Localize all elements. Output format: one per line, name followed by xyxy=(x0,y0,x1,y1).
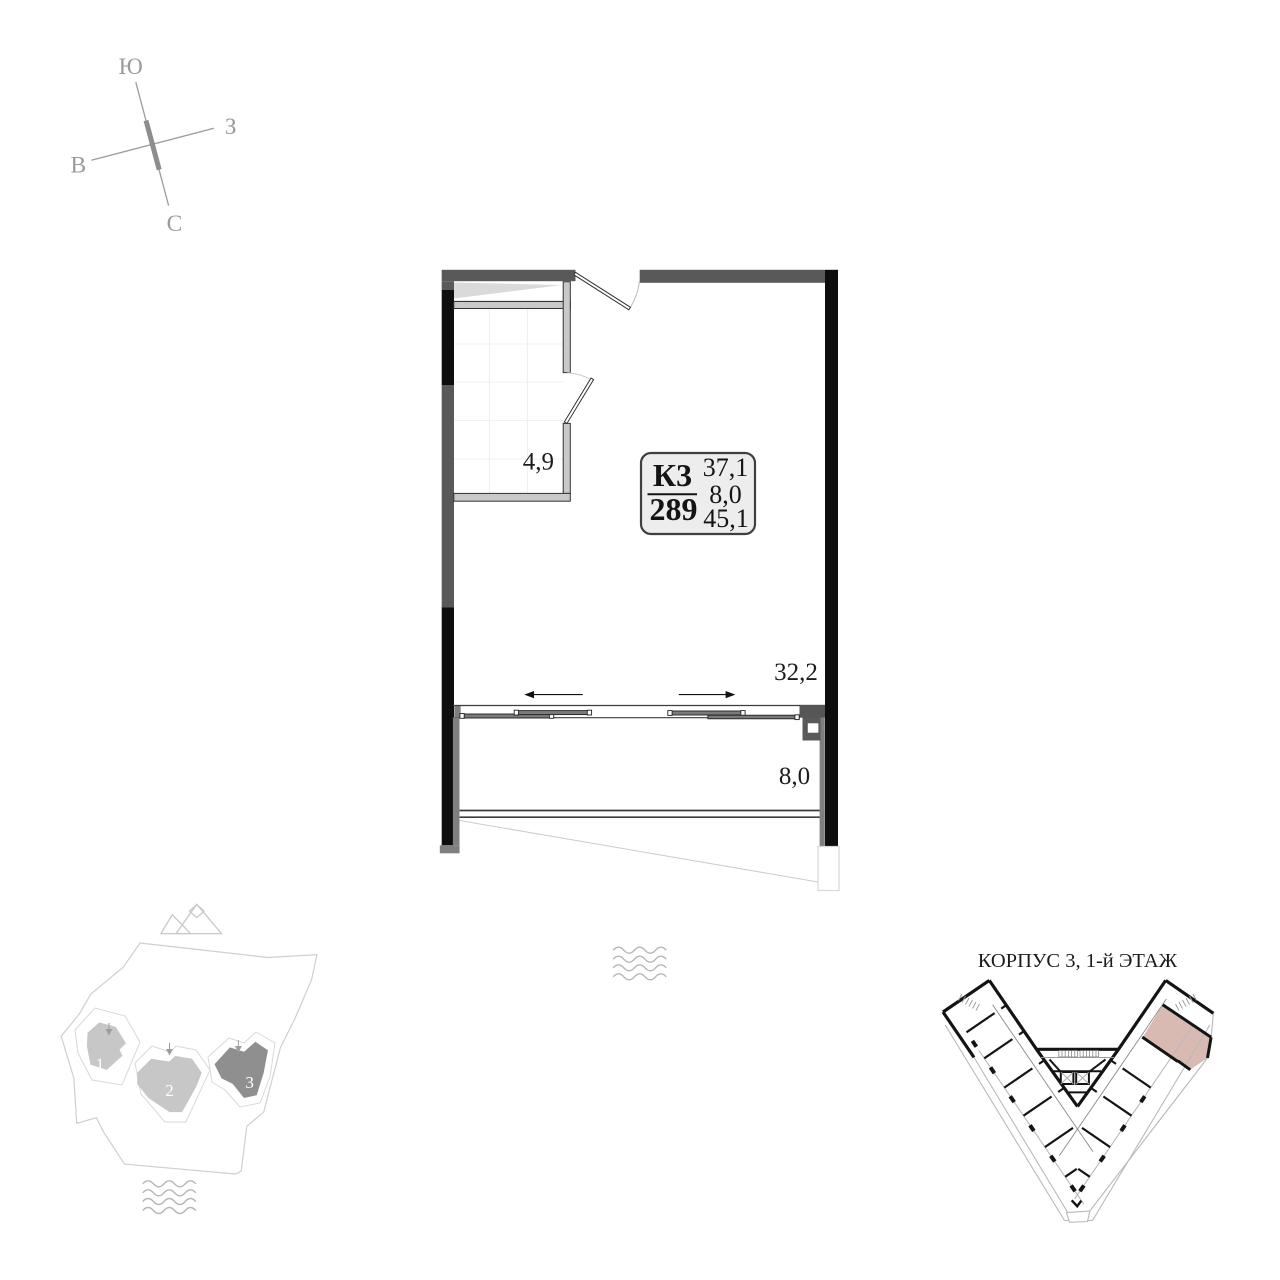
svg-text:32,2: 32,2 xyxy=(774,659,818,686)
svg-text:8,0: 8,0 xyxy=(779,763,810,790)
svg-text:4,9: 4,9 xyxy=(523,449,554,476)
svg-text:Ю: Ю xyxy=(119,54,143,80)
svg-text:289: 289 xyxy=(650,491,698,527)
svg-text:В: В xyxy=(71,153,87,179)
svg-text:С: С xyxy=(167,211,183,237)
svg-text:2: 2 xyxy=(165,1081,174,1100)
svg-text:З: З xyxy=(225,114,237,140)
svg-text:1: 1 xyxy=(96,1055,105,1074)
svg-text:К3: К3 xyxy=(653,457,692,493)
svg-text:3: 3 xyxy=(245,1073,254,1092)
svg-text:37,1: 37,1 xyxy=(703,453,749,482)
svg-text:КОРПУС 3, 1-й ЭТАЖ: КОРПУС 3, 1-й ЭТАЖ xyxy=(978,950,1178,972)
svg-text:45,1: 45,1 xyxy=(703,504,749,533)
